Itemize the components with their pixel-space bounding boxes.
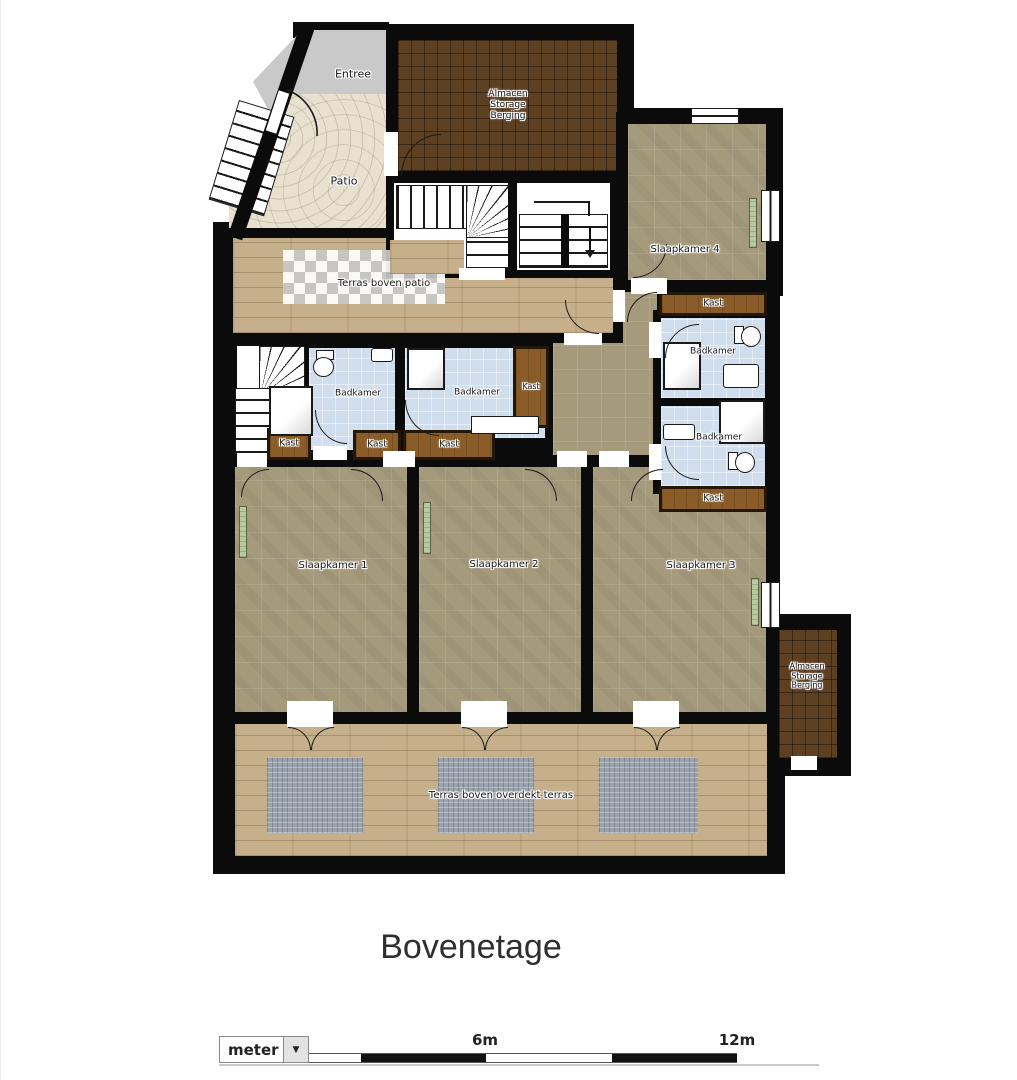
sink	[723, 364, 759, 388]
slaapkamer1-radiator	[239, 506, 247, 558]
slaapkamer4-top-window	[691, 108, 739, 124]
storage-label-line2: Storage	[490, 100, 525, 110]
room-label-badkamer-right1: Badkamer	[690, 347, 736, 358]
room-label-slaapkamer4: Slaapkamer 4	[650, 244, 719, 256]
sink	[663, 424, 695, 440]
page-title: Bovenetage	[380, 928, 562, 967]
closet-label: Kast	[367, 440, 386, 451]
scale-unit-label: meter	[220, 1041, 283, 1059]
chevron-down-icon[interactable]: ▼	[283, 1037, 308, 1062]
badkamer-right1-door-gap	[649, 322, 661, 358]
bathtub	[471, 416, 539, 434]
room-label-storage-bottom: Almacen Storage Berging	[790, 662, 825, 691]
slaapkamer3-right-window	[761, 582, 780, 628]
entree-door-gap	[271, 92, 284, 132]
stair-landing-floor	[390, 240, 464, 274]
slaapkamer1-door-gap	[383, 451, 415, 467]
room-storage-bottom	[769, 620, 847, 768]
scale-unit-dropdown[interactable]: meter ▼	[219, 1036, 309, 1063]
room-label-patio: Patio	[331, 174, 358, 187]
closet-label: Kast	[522, 382, 539, 392]
storage-label-line3: Berging	[791, 681, 822, 690]
scale-bar-segment	[612, 1054, 737, 1062]
entree-door-arc	[287, 90, 317, 136]
vestibule-door-gap	[613, 290, 625, 322]
slaapkamer2-radiator	[423, 502, 431, 554]
stairs-center-rail	[561, 214, 569, 268]
floorplan-page: Entree Patio Almacen Storage Berging Ter…	[0, 0, 1017, 1080]
room-label-entree: Entree	[335, 67, 371, 80]
slaapkamer3-door-gap	[599, 451, 629, 467]
room-label-terras-patio: Terras boven patio	[338, 278, 430, 290]
toilet	[734, 325, 762, 347]
stairs-arrow-icon	[585, 250, 595, 258]
toilet	[313, 350, 335, 378]
slaapkamer4-right-window	[761, 190, 780, 242]
room-label-badkamer-right2: Badkamer	[696, 433, 742, 444]
room-label-slaapkamer1: Slaapkamer 1	[298, 560, 367, 572]
terrace-door-gap-2	[461, 701, 507, 727]
room-label-badkamer-middle: Badkamer	[454, 388, 500, 399]
slaapkamer3-radiator	[751, 578, 759, 626]
stairs-arrow-stem	[589, 226, 591, 250]
shower	[407, 348, 445, 390]
closet-label: Kast	[279, 439, 298, 450]
stairs-landing-opening	[459, 268, 505, 280]
storage-label-line3: Berging	[491, 110, 526, 120]
closet-label: Kast	[703, 494, 722, 505]
scale-bar-underline	[219, 1064, 819, 1066]
room-label-slaapkamer3: Slaapkamer 3	[666, 560, 735, 572]
closet-label: Kast	[703, 299, 722, 310]
storage-top-door-gap	[384, 132, 398, 176]
storage-bottom-door-gap	[791, 756, 817, 770]
room-slaapkamer-2	[407, 455, 593, 727]
badkamer-left-door-gap	[313, 446, 347, 460]
stairs-lower-run	[466, 237, 510, 270]
room-label-slaapkamer2: Slaapkamer 2	[469, 559, 538, 571]
terrace-mat	[599, 757, 698, 833]
storage-label-line2: Storage	[791, 671, 822, 680]
scale-bar	[234, 1053, 737, 1063]
storage-label-line1: Almacen	[488, 89, 527, 99]
terras-hall-door-gap	[564, 333, 602, 345]
sink	[371, 348, 393, 362]
storage-label-line1: Almacen	[790, 662, 825, 671]
stairs-winder-fan	[466, 185, 512, 239]
room-label-badkamer-left: Badkamer	[335, 389, 381, 400]
toilet	[728, 451, 756, 473]
slaapkamer2-door-gap	[557, 451, 587, 467]
scale-bar-segment	[361, 1054, 486, 1062]
shower	[269, 386, 313, 436]
slaapkamer4-door-gap	[631, 278, 667, 294]
scale-label-12m: 12m	[719, 1031, 756, 1049]
stairs-divider-wall	[508, 183, 517, 270]
terrace-door-gap-1	[287, 701, 333, 727]
room-label-terras-overdekt: Terras boven overdekt terras	[429, 790, 573, 802]
terrace-mat	[267, 757, 363, 833]
scale-label-6m: 6m	[472, 1031, 498, 1049]
closet-label: Kast	[439, 440, 458, 451]
slaapkamer1-left-door-gap	[237, 453, 267, 467]
diagonal-wall-graphic	[213, 18, 343, 268]
terrace-door-gap-3	[633, 701, 679, 727]
slaapkamer4-radiator	[749, 198, 757, 248]
room-label-storage-top: Almacen Storage Berging	[488, 89, 527, 121]
